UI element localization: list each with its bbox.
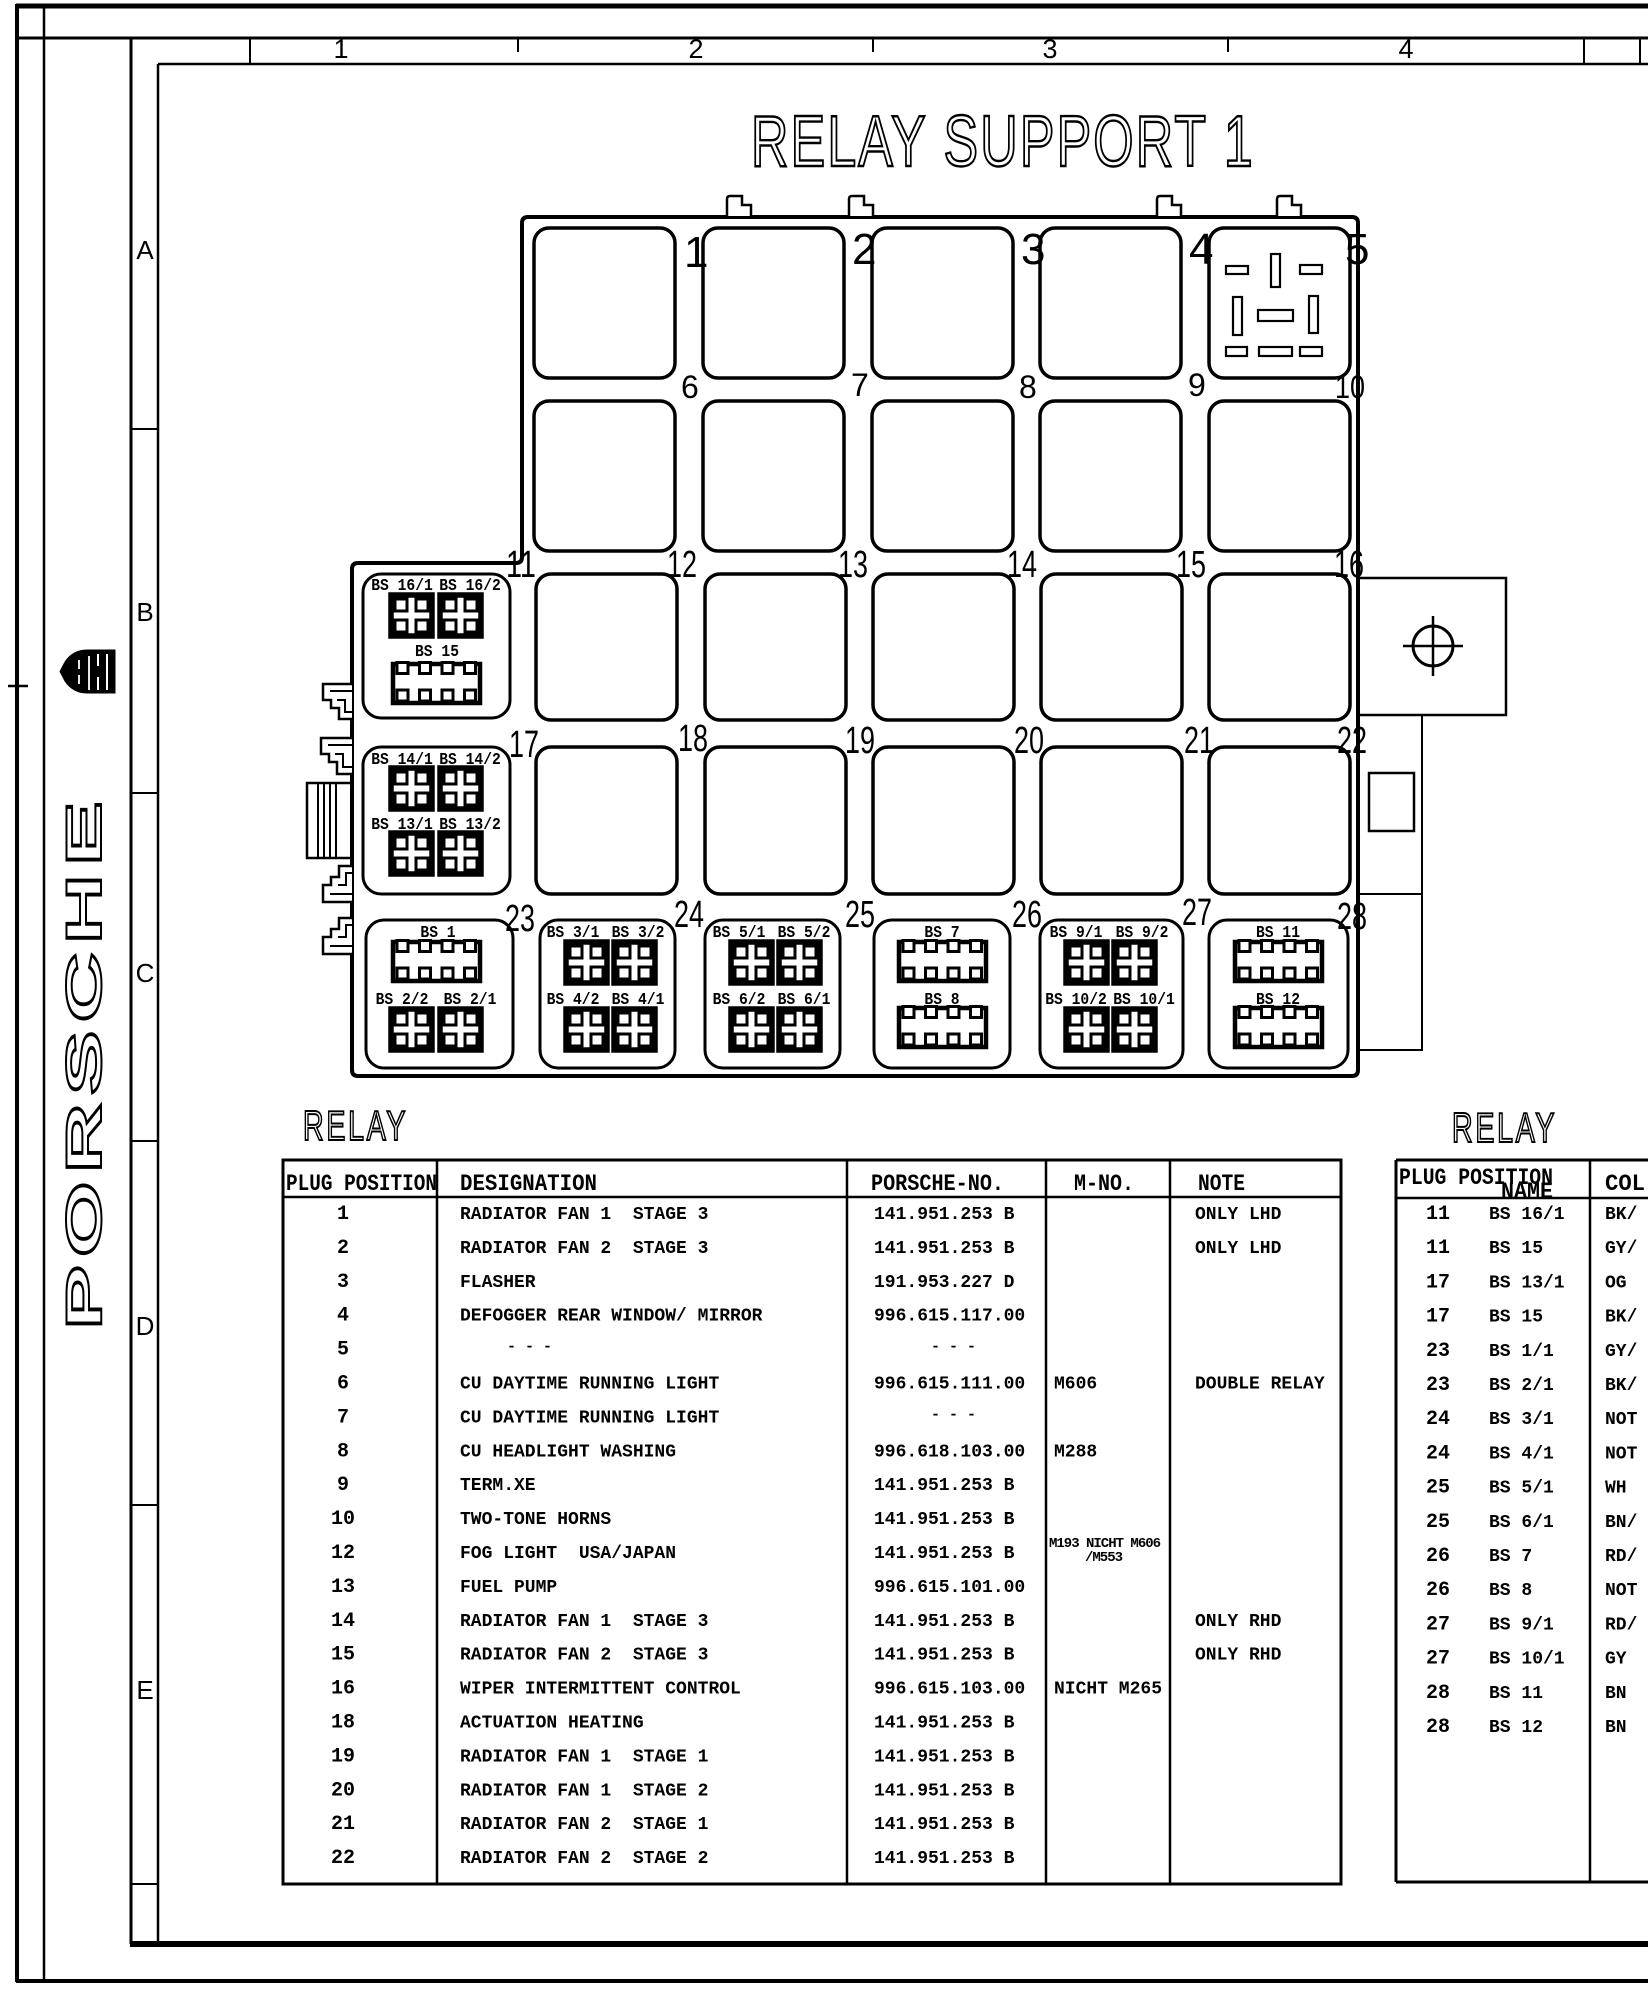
svg-text:22: 22 <box>331 1847 355 1870</box>
svg-text:CU DAYTIME RUNNING LIGHT: CU DAYTIME RUNNING LIGHT <box>460 1375 719 1395</box>
svg-text:996.618.103.00: 996.618.103.00 <box>874 1442 1025 1462</box>
svg-text:/M553: /M553 <box>1085 1550 1123 1566</box>
svg-text:B: B <box>136 597 153 627</box>
svg-text:26: 26 <box>1012 894 1042 936</box>
svg-text:FLASHER: FLASHER <box>460 1273 536 1293</box>
svg-text:141.951.253 B: 141.951.253 B <box>874 1239 1015 1259</box>
svg-text:996.615.103.00: 996.615.103.00 <box>874 1680 1025 1700</box>
svg-text:4: 4 <box>1189 225 1213 274</box>
svg-text:- - -: - - - <box>931 1339 976 1356</box>
svg-text:RADIATOR FAN 2 STAGE 3: RADIATOR FAN 2 STAGE 3 <box>460 1646 708 1666</box>
svg-text:13: 13 <box>838 544 868 586</box>
svg-text:ACTUATION HEATING: ACTUATION HEATING <box>460 1714 644 1734</box>
svg-text:21: 21 <box>1184 720 1214 762</box>
svg-text:1: 1 <box>337 1203 349 1226</box>
svg-text:D: D <box>136 1311 155 1341</box>
svg-text:2: 2 <box>688 34 703 64</box>
svg-text:3: 3 <box>1042 34 1057 64</box>
svg-text:4: 4 <box>337 1305 349 1328</box>
svg-text:996.615.117.00: 996.615.117.00 <box>874 1307 1025 1327</box>
svg-text:16: 16 <box>1334 544 1364 586</box>
svg-text:BS 3/2: BS 3/2 <box>612 923 665 942</box>
svg-text:3: 3 <box>337 1271 349 1294</box>
svg-text:BS 16/1: BS 16/1 <box>1489 1205 1565 1225</box>
svg-text:17: 17 <box>1426 1271 1450 1294</box>
svg-text:996.615.111.00: 996.615.111.00 <box>874 1375 1025 1395</box>
svg-text:141.951.253 B: 141.951.253 B <box>874 1747 1015 1767</box>
svg-text:RADIATOR FAN 1 STAGE 2: RADIATOR FAN 1 STAGE 2 <box>460 1781 708 1801</box>
svg-text:CU DAYTIME RUNNING LIGHT: CU DAYTIME RUNNING LIGHT <box>460 1408 719 1428</box>
svg-text:28: 28 <box>1426 1716 1450 1739</box>
svg-text:BS 4/1: BS 4/1 <box>1489 1444 1554 1464</box>
svg-text:1: 1 <box>333 34 348 64</box>
svg-text:141.951.253 B: 141.951.253 B <box>874 1849 1015 1869</box>
svg-text:ONLY RHD: ONLY RHD <box>1195 1612 1282 1632</box>
svg-text:BN: BN <box>1605 1684 1627 1704</box>
svg-text:24: 24 <box>674 894 704 936</box>
svg-text:10: 10 <box>331 1508 355 1531</box>
svg-text:BS 16/2: BS 16/2 <box>439 576 501 595</box>
svg-text:12: 12 <box>331 1542 355 1565</box>
svg-text:1: 1 <box>684 228 708 277</box>
svg-text:BS 10/1: BS 10/1 <box>1113 990 1175 1009</box>
svg-text:TERM.XE: TERM.XE <box>460 1476 536 1496</box>
svg-text:BN/: BN/ <box>1605 1513 1637 1533</box>
svg-text:22: 22 <box>1337 720 1367 762</box>
svg-text:BS 2/1: BS 2/1 <box>1489 1376 1554 1396</box>
svg-text:191.953.227 D: 191.953.227 D <box>874 1273 1015 1293</box>
svg-text:23: 23 <box>1426 1340 1450 1363</box>
svg-text:BS 9/1: BS 9/1 <box>1489 1615 1554 1635</box>
svg-text:BS 3/1: BS 3/1 <box>1489 1410 1554 1430</box>
svg-text:BS 15: BS 15 <box>1489 1239 1543 1259</box>
svg-text:BS 4/2: BS 4/2 <box>547 990 600 1009</box>
svg-text:2: 2 <box>337 1237 349 1260</box>
svg-text:RADIATOR FAN 1 STAGE 3: RADIATOR FAN 1 STAGE 3 <box>460 1612 708 1632</box>
svg-text:19: 19 <box>331 1745 355 1768</box>
svg-text:FOG LIGHT USA/JAPAN: FOG LIGHT USA/JAPAN <box>460 1544 676 1564</box>
svg-text:28: 28 <box>1337 896 1367 938</box>
svg-text:BS 11: BS 11 <box>1489 1684 1543 1704</box>
svg-text:DEFOGGER REAR WINDOW/ MIRROR: DEFOGGER REAR WINDOW/ MIRROR <box>460 1307 763 1327</box>
svg-text:141.951.253 B: 141.951.253 B <box>874 1476 1015 1496</box>
svg-text:8: 8 <box>1019 369 1037 405</box>
svg-text:21: 21 <box>331 1813 355 1836</box>
svg-text:BK/: BK/ <box>1605 1205 1637 1225</box>
svg-text:6: 6 <box>681 369 699 405</box>
svg-text:27: 27 <box>1182 892 1212 934</box>
svg-text:GY/: GY/ <box>1605 1239 1637 1259</box>
svg-text:C: C <box>136 958 155 988</box>
svg-text:7: 7 <box>851 367 869 403</box>
svg-text:BS 7: BS 7 <box>1489 1547 1532 1567</box>
svg-text:26: 26 <box>1426 1545 1450 1568</box>
svg-text:18: 18 <box>678 718 708 760</box>
svg-text:17: 17 <box>509 724 539 766</box>
svg-text:19: 19 <box>845 720 875 762</box>
svg-text:3: 3 <box>1021 225 1045 274</box>
svg-text:BS 8: BS 8 <box>1489 1581 1532 1601</box>
svg-text:BK/: BK/ <box>1605 1308 1637 1328</box>
svg-text:141.951.253 B: 141.951.253 B <box>874 1781 1015 1801</box>
svg-text:BS 2/1: BS 2/1 <box>444 990 497 1009</box>
svg-text:RADIATOR FAN 1 STAGE 1: RADIATOR FAN 1 STAGE 1 <box>460 1747 709 1767</box>
svg-text:WH: WH <box>1605 1479 1627 1499</box>
svg-text:BS 5/1: BS 5/1 <box>1489 1479 1554 1499</box>
svg-text:WIPER INTERMITTENT CONTROL: WIPER INTERMITTENT CONTROL <box>460 1680 741 1700</box>
svg-text:PLUG POSITION: PLUG POSITION <box>286 1171 437 1197</box>
svg-text:BN: BN <box>1605 1718 1627 1738</box>
svg-text:17: 17 <box>1426 1306 1450 1329</box>
svg-text:25: 25 <box>1426 1477 1450 1500</box>
svg-text:RELAY: RELAY <box>1452 1103 1557 1151</box>
svg-text:M-NO.: M-NO. <box>1074 1171 1134 1197</box>
svg-text:28: 28 <box>1426 1682 1450 1705</box>
svg-text:E: E <box>136 1675 153 1705</box>
svg-text:4: 4 <box>1398 34 1413 64</box>
svg-text:OG: OG <box>1605 1273 1627 1293</box>
svg-text:20: 20 <box>331 1779 355 1802</box>
svg-text:5: 5 <box>337 1339 349 1362</box>
svg-text:GY/: GY/ <box>1605 1342 1637 1362</box>
svg-text:14: 14 <box>1007 544 1037 586</box>
svg-text:13: 13 <box>331 1576 355 1599</box>
svg-text:9: 9 <box>337 1474 349 1497</box>
svg-text:RADIATOR FAN 2 STAGE 1: RADIATOR FAN 2 STAGE 1 <box>460 1815 709 1835</box>
svg-text:BS 3/1: BS 3/1 <box>547 923 600 942</box>
svg-text:CU HEADLIGHT WASHING: CU HEADLIGHT WASHING <box>460 1442 676 1462</box>
svg-text:11: 11 <box>1426 1237 1450 1260</box>
svg-text:BS 16/1: BS 16/1 <box>371 576 433 595</box>
svg-text:A: A <box>136 235 154 265</box>
svg-text:11: 11 <box>506 544 536 586</box>
svg-text:PORSCHE-NO.: PORSCHE-NO. <box>871 1171 1004 1197</box>
svg-text:11: 11 <box>1426 1203 1450 1226</box>
svg-text:BS 5/1: BS 5/1 <box>713 923 766 942</box>
svg-text:DOUBLE RELAY: DOUBLE RELAY <box>1195 1375 1325 1395</box>
svg-text:141.951.253 B: 141.951.253 B <box>874 1544 1015 1564</box>
svg-text:141.951.253 B: 141.951.253 B <box>874 1205 1015 1225</box>
svg-text:DESIGNATION: DESIGNATION <box>460 1171 597 1197</box>
svg-text:GY: GY <box>1605 1650 1627 1670</box>
svg-text:27: 27 <box>1426 1613 1450 1636</box>
svg-text:BS 12: BS 12 <box>1489 1718 1543 1738</box>
svg-text:BS 9/1: BS 9/1 <box>1050 923 1103 942</box>
svg-text:NAME: NAME <box>1501 1179 1553 1205</box>
svg-text:18: 18 <box>331 1712 355 1735</box>
svg-text:BS 15: BS 15 <box>1489 1308 1543 1328</box>
svg-text:RD/: RD/ <box>1605 1547 1637 1567</box>
svg-text:16: 16 <box>331 1678 355 1701</box>
svg-text:996.615.101.00: 996.615.101.00 <box>874 1578 1025 1598</box>
svg-text:141.951.253 B: 141.951.253 B <box>874 1714 1015 1734</box>
svg-text:23: 23 <box>1426 1374 1450 1397</box>
svg-text:BS 13/1: BS 13/1 <box>1489 1273 1565 1293</box>
svg-text:12: 12 <box>667 544 697 586</box>
svg-text:9: 9 <box>1188 367 1206 403</box>
svg-text:BS 5/2: BS 5/2 <box>778 923 831 942</box>
svg-text:10: 10 <box>1335 369 1365 405</box>
svg-text:15: 15 <box>331 1644 355 1667</box>
svg-text:BS 6/2: BS 6/2 <box>713 990 766 1009</box>
svg-text:NOT: NOT <box>1605 1581 1638 1601</box>
svg-text:BS 15: BS 15 <box>415 642 459 661</box>
svg-text:15: 15 <box>1176 544 1206 586</box>
svg-text:24: 24 <box>1426 1408 1450 1431</box>
svg-text:141.951.253 B: 141.951.253 B <box>874 1815 1015 1835</box>
svg-text:NOTE: NOTE <box>1198 1171 1245 1197</box>
svg-text:ONLY LHD: ONLY LHD <box>1195 1205 1282 1225</box>
svg-text:141.951.253 B: 141.951.253 B <box>874 1510 1015 1530</box>
svg-text:TWO-TONE HORNS: TWO-TONE HORNS <box>460 1510 611 1530</box>
svg-text:141.951.253 B: 141.951.253 B <box>874 1612 1015 1632</box>
svg-text:NICHT M265: NICHT M265 <box>1054 1680 1162 1700</box>
svg-text:27: 27 <box>1426 1648 1450 1671</box>
svg-text:ONLY LHD: ONLY LHD <box>1195 1239 1282 1259</box>
svg-text:PORSCHE: PORSCHE <box>56 793 111 1330</box>
svg-text:141.951.253 B: 141.951.253 B <box>874 1646 1015 1666</box>
svg-text:M606: M606 <box>1054 1375 1097 1395</box>
svg-text:RELAY SUPPORT 1: RELAY SUPPORT 1 <box>751 102 1255 182</box>
svg-text:NOT: NOT <box>1605 1410 1638 1430</box>
svg-text:BS 9/2: BS 9/2 <box>1116 923 1169 942</box>
svg-text:8: 8 <box>337 1440 349 1463</box>
svg-text:BS 4/1: BS 4/1 <box>612 990 665 1009</box>
svg-text:23: 23 <box>505 898 535 940</box>
svg-text:RADIATOR FAN 1 STAGE 3: RADIATOR FAN 1 STAGE 3 <box>460 1205 708 1225</box>
svg-text:RD/: RD/ <box>1605 1615 1637 1635</box>
svg-text:6: 6 <box>337 1373 349 1396</box>
svg-text:24: 24 <box>1426 1442 1450 1465</box>
svg-text:RADIATOR FAN 2 STAGE 3: RADIATOR FAN 2 STAGE 3 <box>460 1239 708 1259</box>
svg-text:M288: M288 <box>1054 1442 1097 1462</box>
svg-text:NOT: NOT <box>1605 1444 1638 1464</box>
svg-text:BS 6/1: BS 6/1 <box>778 990 831 1009</box>
svg-text:BK/: BK/ <box>1605 1376 1637 1396</box>
svg-text:7: 7 <box>337 1406 349 1429</box>
svg-text:BS 6/1: BS 6/1 <box>1489 1513 1554 1533</box>
svg-text:- - -: - - - <box>507 1339 552 1356</box>
svg-text:25: 25 <box>845 894 875 936</box>
svg-text:25: 25 <box>1426 1511 1450 1534</box>
svg-text:BS 1/1: BS 1/1 <box>1489 1342 1554 1362</box>
svg-text:14: 14 <box>331 1610 355 1633</box>
svg-text:RADIATOR FAN 2 STAGE 2: RADIATOR FAN 2 STAGE 2 <box>460 1849 708 1869</box>
svg-text:RELAY: RELAY <box>303 1101 408 1149</box>
svg-text:5: 5 <box>1345 225 1369 274</box>
svg-text:COL: COL <box>1605 1171 1645 1197</box>
svg-text:26: 26 <box>1426 1579 1450 1602</box>
svg-text:BS 10/1: BS 10/1 <box>1489 1650 1565 1670</box>
svg-text:2: 2 <box>852 225 876 274</box>
svg-text:BS 2/2: BS 2/2 <box>376 990 429 1009</box>
svg-text:ONLY RHD: ONLY RHD <box>1195 1646 1282 1666</box>
svg-text:BS 10/2: BS 10/2 <box>1045 990 1107 1009</box>
svg-text:FUEL PUMP: FUEL PUMP <box>460 1578 557 1598</box>
svg-text:- - -: - - - <box>931 1406 976 1423</box>
svg-text:20: 20 <box>1014 720 1044 762</box>
